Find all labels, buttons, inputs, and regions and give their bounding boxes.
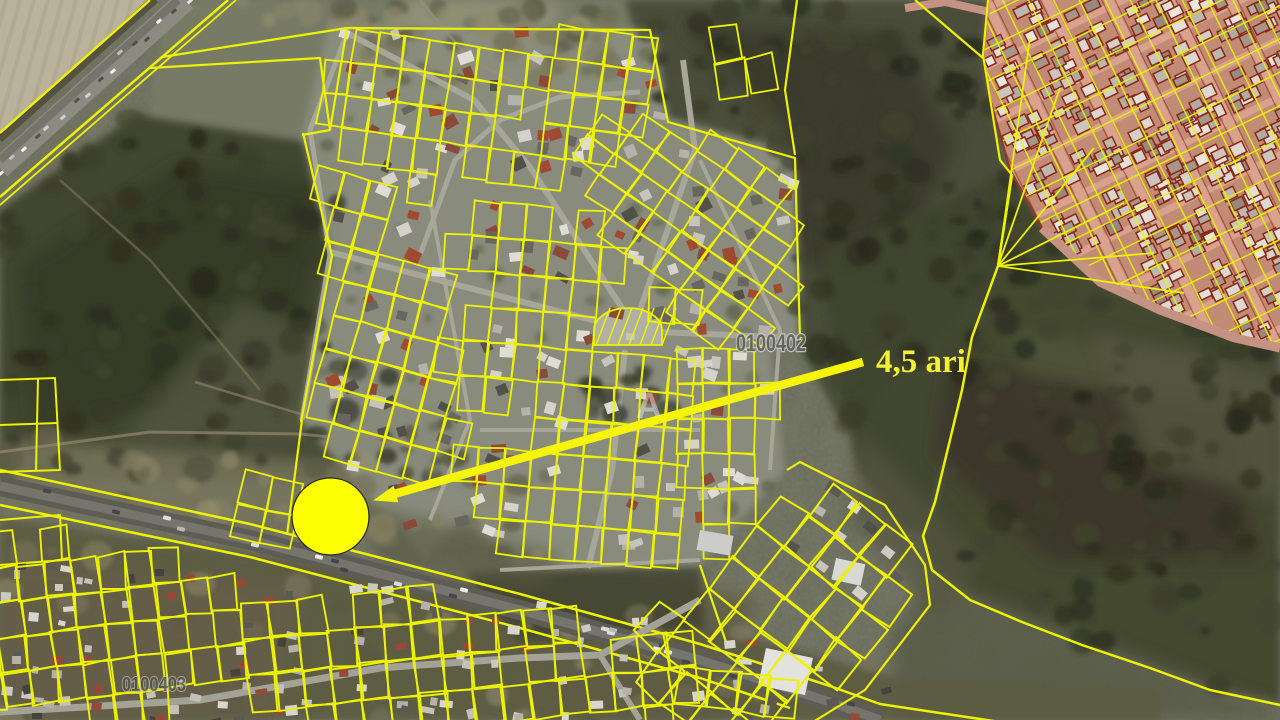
svg-text:0100403: 0100403 [122,674,186,696]
svg-text:4,5 ari: 4,5 ari [876,344,966,380]
svg-text:0100402: 0100402 [736,330,806,357]
